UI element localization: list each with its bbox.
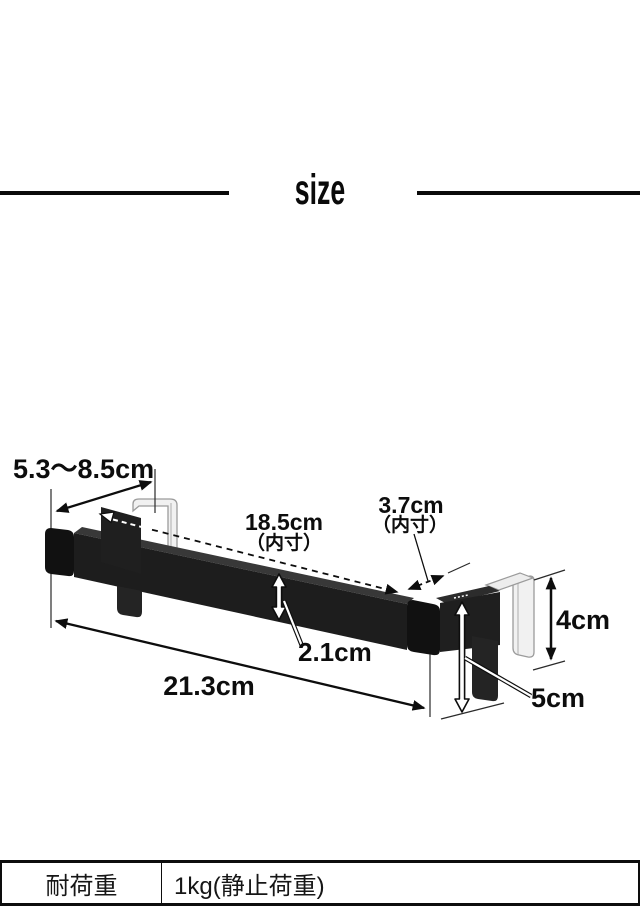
hook-depth-label: 5.3～8.5cm xyxy=(13,454,154,484)
bracket-drop-label: 5cm xyxy=(531,683,585,713)
spec-table: 耐荷重 1kg(静止荷重) xyxy=(0,860,640,906)
left-bracket-tab xyxy=(117,586,142,617)
dim-hook-height: 4cm xyxy=(533,570,610,670)
spec-label: 耐荷重 xyxy=(2,863,162,903)
overall-width-label: 21.3cm xyxy=(163,671,255,701)
inner-depth-note: （内寸） xyxy=(372,513,448,536)
right-end-cap xyxy=(407,600,440,655)
product-size-sheet: size xyxy=(0,0,640,919)
dim-inner-depth: 3.7cm （内寸） xyxy=(372,492,470,589)
left-end-cap xyxy=(45,528,74,576)
hook-height-label: 4cm xyxy=(556,605,610,635)
inner-width-note: （内寸） xyxy=(246,531,322,554)
bar-thickness-label: 2.1cm xyxy=(298,637,372,667)
inner-width-label: 18.5cm xyxy=(245,509,323,535)
spec-value: 1kg(静止荷重) xyxy=(162,863,638,903)
size-diagram: 5.3～8.5cm 18.5cm （内寸） 3.7cm （内寸） 2.1cm xyxy=(0,0,640,919)
